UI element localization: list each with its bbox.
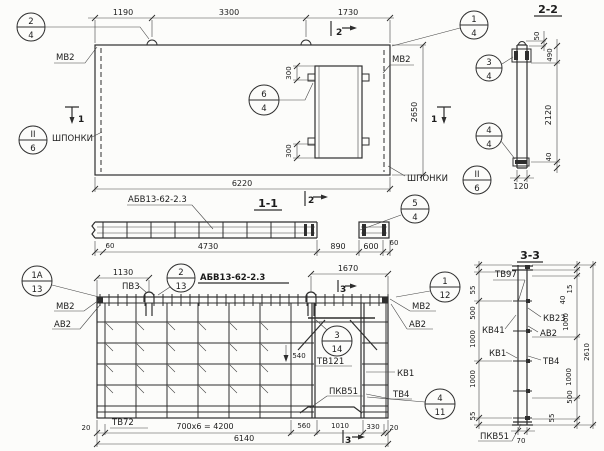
dim-3300: 3300 (219, 8, 239, 17)
svg-text:4: 4 (28, 31, 33, 41)
svg-text:4: 4 (412, 213, 417, 223)
svg-text:II: II (30, 130, 35, 140)
svg-text:14: 14 (332, 345, 343, 355)
dim-20-right: 20 (390, 424, 399, 432)
svg-text:1А: 1А (31, 271, 42, 281)
svg-text:3: 3 (340, 285, 346, 295)
svg-text:13: 13 (176, 282, 187, 292)
svg-text:1: 1 (471, 15, 476, 25)
drawing-canvas: 1190 3300 1730 6220 2650 300 300 МВ2 МВ2… (0, 0, 604, 451)
svg-text:II: II (474, 170, 479, 180)
label-mv2-mesh-right: МВ2 (412, 302, 431, 312)
dim-300-top-text: 300 (285, 66, 293, 79)
svg-text:3: 3 (334, 331, 339, 341)
dim-1190: 1190 (113, 8, 133, 17)
dim-890: 890 (330, 242, 345, 251)
dim-1010: 1010 (331, 422, 349, 430)
svg-text:4: 4 (471, 29, 476, 39)
label-tv121: ТВ121 (316, 357, 344, 367)
callout-ii-6-right: II 6 (463, 166, 491, 194)
paper-background (0, 0, 604, 451)
label-tv4-33: ТВ4 (542, 357, 559, 367)
svg-text:3: 3 (345, 436, 351, 446)
label-shponki-left: ШПОНКИ (52, 134, 93, 144)
dim-500-l: 500 (469, 306, 477, 319)
label-mv2-right: МВ2 (392, 55, 411, 65)
svg-text:4: 4 (486, 126, 491, 136)
dim-490: 490 (546, 48, 554, 61)
label-kv41: КВ41 (482, 326, 505, 336)
engineering-drawing-sheet: 1190 3300 1730 6220 2650 300 300 МВ2 МВ2… (0, 0, 604, 451)
svg-text:6: 6 (261, 90, 266, 100)
svg-text:2: 2 (178, 268, 183, 278)
dim-1000-l2: 1000 (469, 370, 477, 388)
dim-500-r: 500 (566, 390, 574, 403)
dim-6140: 6140 (234, 434, 254, 443)
dim-20-left: 20 (82, 424, 91, 432)
dim-40: 40 (559, 296, 567, 305)
label-kv1-33: КВ1 (489, 349, 506, 359)
section-1-1-title: 1-1 (258, 197, 278, 210)
svg-text:4: 4 (486, 140, 491, 150)
label-mv2-left: МВ2 (56, 53, 75, 63)
svg-text:2: 2 (336, 28, 342, 38)
label-pkv51-33: ПКВ51 (480, 432, 509, 442)
dim-300-bot-text: 300 (285, 144, 293, 157)
label-mv2-mesh-left: МВ2 (56, 302, 75, 312)
dim-560: 560 (297, 422, 310, 430)
dim-2120: 2120 (544, 105, 553, 125)
label-kv1: КВ1 (397, 369, 414, 379)
dim-55-tl: 55 (469, 286, 477, 295)
dim-1670: 1670 (338, 264, 358, 273)
svg-text:4: 4 (437, 394, 442, 404)
dim-330: 330 (366, 423, 379, 431)
dim-55-r: 55 (548, 414, 556, 423)
label-pkv51: ПКВ51 (329, 387, 358, 397)
label-av2-mesh-right: АВ2 (409, 320, 426, 330)
section-2-2-title: 2-2 (538, 3, 558, 16)
dim-540: 540 (292, 352, 305, 360)
dim-15: 15 (566, 285, 574, 294)
dim-70: 70 (517, 437, 526, 445)
label-shponki-right: ШПОНКИ (407, 174, 448, 184)
label-tv97: ТВ97 (494, 270, 517, 280)
dim-700x6: 700x6 = 4200 (176, 422, 233, 431)
callout-ii-6-left: II 6 (19, 126, 47, 154)
dim-60-right: 60 (390, 239, 399, 247)
dim-4730: 4730 (198, 242, 218, 251)
svg-text:3: 3 (486, 58, 491, 68)
label-av2-33: АВ2 (540, 329, 557, 339)
svg-text:1: 1 (78, 115, 84, 125)
dim-55-bl: 55 (469, 412, 477, 421)
dim-120: 120 (513, 182, 528, 191)
svg-text:12: 12 (440, 291, 451, 301)
label-kv23: КВ23 (543, 314, 566, 324)
label-tv72: ТВ72 (111, 418, 134, 428)
dim-1730: 1730 (338, 8, 358, 17)
dim-1000-l1: 1000 (469, 330, 477, 348)
dim-1130: 1130 (113, 268, 133, 277)
svg-text:1: 1 (431, 115, 437, 125)
svg-text:1: 1 (442, 277, 447, 287)
label-tv4: ТВ4 (392, 390, 409, 400)
section-3-3-title: 3-3 (520, 249, 540, 262)
svg-text:13: 13 (32, 285, 43, 295)
svg-text:2: 2 (308, 196, 314, 206)
svg-text:11: 11 (435, 408, 446, 418)
dim-1000-r2: 1000 (565, 368, 573, 386)
label-pv3: ПВ3 (122, 282, 140, 292)
mesh-title: АБВ13-62-2.3 (200, 273, 265, 283)
svg-text:5: 5 (412, 199, 417, 209)
dim-600: 600 (363, 242, 378, 251)
dim-50: 50 (533, 32, 541, 41)
dim-6220: 6220 (232, 179, 252, 188)
svg-text:6: 6 (474, 184, 479, 194)
dim-2610: 2610 (583, 343, 591, 361)
svg-text:6: 6 (30, 144, 35, 154)
dim-2650: 2650 (410, 102, 419, 122)
svg-text:2: 2 (28, 17, 33, 27)
svg-text:4: 4 (261, 104, 266, 114)
label-abv13: АБВ13-62-2.3 (128, 195, 187, 205)
dim-40: 40 (545, 153, 553, 162)
dim-60-left: 60 (106, 242, 115, 250)
svg-text:4: 4 (486, 72, 491, 82)
label-av2-mesh-left: АВ2 (54, 320, 71, 330)
